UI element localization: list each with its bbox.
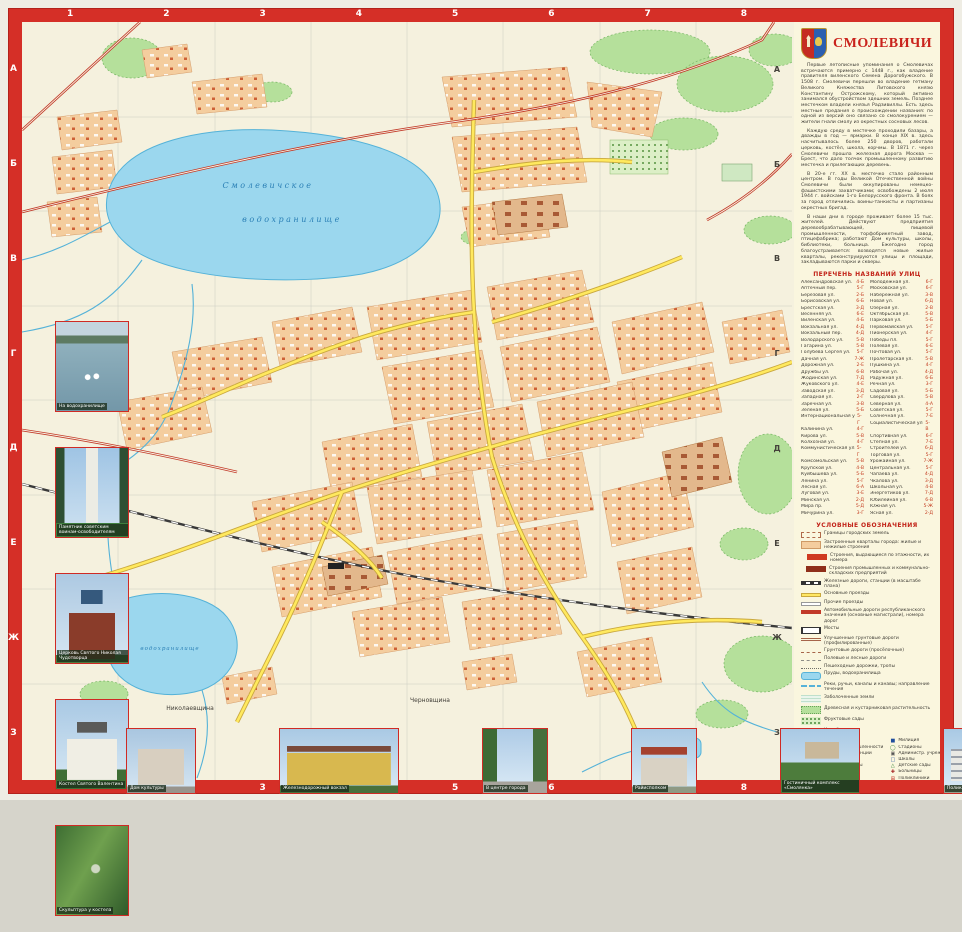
photo-caption: Дом культуры bbox=[128, 785, 166, 792]
legend-row: Застроенные кварталы города: жилые и неж… bbox=[801, 540, 933, 550]
legend-swatch bbox=[801, 660, 821, 661]
photo-caption: Памятник советским воинам-освободителям bbox=[57, 524, 128, 536]
city-title: СМОЛЕВИЧИ bbox=[833, 36, 932, 52]
legend-label: Автомобильные дороги республиканского зн… bbox=[824, 608, 933, 624]
landmark-photo: Железнодорожный вокзал bbox=[279, 728, 399, 794]
legend-label: Полевые и лесные дороги bbox=[824, 656, 933, 661]
info-sidebar: СМОЛЕВИЧИ Первые летописные упоминания о… bbox=[794, 22, 940, 780]
photo-caption: Церковь Святого Николая Чудотворца bbox=[57, 650, 128, 662]
legend-row: Полевые и лесные дороги bbox=[801, 656, 933, 661]
history-text: Первые летописные упоминания о Смолевича… bbox=[801, 63, 933, 266]
legend-swatch bbox=[801, 541, 821, 549]
street-name: Мичурина ул. bbox=[801, 511, 834, 517]
grid-letter: А bbox=[7, 22, 20, 117]
grid-number: 7 bbox=[600, 7, 696, 21]
grid-letter: Г bbox=[770, 306, 784, 401]
grid-letter: Б bbox=[7, 117, 20, 212]
city-map-canvas: Смолевичское водохранилище водохранилище… bbox=[22, 22, 792, 780]
legend-swatch bbox=[801, 685, 821, 687]
grid-number: 3 bbox=[215, 7, 311, 21]
legend-label: Строения, выдающиеся по этажности, их но… bbox=[830, 553, 933, 563]
legend-label: Пруды, водохранилища bbox=[824, 671, 933, 676]
street-grid-ref: 5-Г bbox=[857, 414, 864, 427]
landmark-photo: Гостиничный комплекс «Смолянка» bbox=[780, 728, 860, 794]
legend-swatch bbox=[801, 638, 821, 641]
street-grid-ref: 3-Г bbox=[857, 511, 864, 517]
legend-row: Мосты bbox=[801, 626, 933, 633]
history-paragraph: Каждую среду в местечке проходили базары… bbox=[801, 129, 933, 169]
street-name: Интернациональная ул. bbox=[801, 414, 855, 427]
photo-strip-left: На водохранилище Памятник советским воин… bbox=[15, 305, 91, 932]
legend-label: Заболоченные земли bbox=[824, 695, 933, 700]
landmark-photo: Скульптура у костела bbox=[55, 825, 129, 916]
legend-swatch bbox=[801, 628, 821, 633]
history-paragraph: Первые летописные упоминания о Смолевича… bbox=[801, 63, 933, 126]
legend-label: Застроенные кварталы города: жилые и неж… bbox=[824, 540, 933, 550]
history-paragraph: В 20-е гг. XX в. местечко стало районным… bbox=[801, 172, 933, 212]
legend-label: Железные дороги, станции (в масштабе пла… bbox=[824, 579, 933, 589]
sidebar-header: СМОЛЕВИЧИ bbox=[801, 28, 933, 59]
street-name: Социалистическая ул. bbox=[870, 421, 923, 434]
legend-label: Реки, ручьи, каналы и канавы; направлени… bbox=[824, 682, 933, 692]
legend-swatch bbox=[801, 602, 821, 606]
legend-swatch bbox=[801, 668, 821, 669]
railway-station-symbol bbox=[328, 563, 344, 569]
legend-swatch bbox=[801, 652, 821, 653]
legend-row: Заболоченные земли bbox=[801, 695, 933, 704]
grid-letter: Б bbox=[770, 117, 784, 212]
legend-swatch bbox=[801, 581, 821, 585]
legend-label: Древесная и кустарниковая растительность bbox=[824, 706, 933, 711]
legend-heading: УСЛОВНЫЕ ОБОЗНАЧЕНИЯ bbox=[801, 522, 933, 529]
legend-swatch bbox=[807, 554, 827, 560]
legend-row: Улучшенные грунтовые дороги (профилирова… bbox=[801, 636, 933, 646]
street-grid-ref: 5-В bbox=[925, 421, 933, 434]
legend-label: Строения промышленных и коммунально-скла… bbox=[829, 566, 933, 576]
grid-number: 6 bbox=[503, 7, 599, 21]
cemetery-area bbox=[722, 164, 752, 181]
grid-number: 5 bbox=[407, 7, 503, 21]
grid-number: 1 bbox=[22, 7, 118, 21]
legend-swatch bbox=[801, 672, 821, 680]
street-entry: Ясная ул. 2-Д bbox=[870, 511, 933, 517]
photo-caption: Костел Святого Валентина bbox=[57, 781, 125, 788]
legend-row: Железные дороги, станции (в масштабе пла… bbox=[801, 579, 933, 589]
legend-row: Грунтовые дороги (просёлочные) bbox=[801, 648, 933, 653]
legend-swatch bbox=[801, 532, 821, 538]
grid-letter: Д bbox=[770, 401, 784, 496]
landmark-photo: Поликлиника bbox=[943, 728, 962, 794]
reservoir-label-line2: водохранилище bbox=[242, 215, 342, 224]
grid-letter: Е bbox=[770, 496, 784, 591]
photo-caption: Скульптура у костела bbox=[57, 907, 113, 914]
grid-letter: В bbox=[770, 212, 784, 307]
village-label-west: Николаевщина bbox=[166, 705, 214, 712]
legend-label: Прочие проезды bbox=[824, 600, 933, 605]
legend-row: Пешеходные дорожки, тропы bbox=[801, 664, 933, 669]
photo-caption: Райисполком bbox=[633, 785, 668, 792]
grid-number: 4 bbox=[311, 7, 407, 21]
street-grid-ref: 2-Д bbox=[925, 511, 933, 517]
history-paragraph: В наши дни в городе проживает более 15 т… bbox=[801, 215, 933, 266]
street-index: Александровская ул. 4-Б Аптечный пер. 5-… bbox=[801, 280, 933, 517]
legend-swatch bbox=[806, 566, 826, 572]
legend-label: Грунтовые дороги (просёлочные) bbox=[824, 648, 933, 653]
legend-list: Границы городских земель Застроенные ква… bbox=[801, 531, 933, 736]
landmark-photo: На водохранилище bbox=[55, 321, 129, 412]
legend-row: Пруды, водохранилища bbox=[801, 671, 933, 680]
grid-number: 8 bbox=[696, 7, 792, 21]
legend-row: Прочие проезды bbox=[801, 600, 933, 606]
street-entry: Мичурина ул. 3-Г bbox=[801, 511, 864, 517]
legend-row: Автомобильные дороги республиканского зн… bbox=[801, 608, 933, 624]
landmark-photo: В центре города bbox=[482, 728, 548, 794]
photo-strip-bottom: Дом культуры Железнодорожный вокзал В це… bbox=[86, 712, 962, 780]
grid-letter: Ж bbox=[770, 591, 784, 686]
village-label-east: Черновщина bbox=[410, 697, 450, 704]
street-entry: Интернациональная ул. 5-Г bbox=[801, 414, 864, 427]
legend-swatch bbox=[801, 593, 821, 597]
scanned-map-sheet: Смолевичское водохранилище водохранилище… bbox=[0, 0, 962, 800]
legend-label: Улучшенные грунтовые дороги (профилирова… bbox=[824, 636, 933, 646]
reservoir-label-line1: Смолевичское bbox=[223, 181, 314, 190]
street-entry: Коммунистическая ул. 5-Г bbox=[801, 446, 864, 459]
legend-swatch bbox=[801, 695, 821, 703]
legend-label: Основные проезды bbox=[824, 591, 933, 596]
legend-swatch bbox=[801, 610, 821, 614]
reservoir-south-label: водохранилище bbox=[140, 646, 199, 652]
street-entry: Социалистическая ул. 5-В bbox=[870, 421, 933, 434]
photo-caption: Железнодорожный вокзал bbox=[281, 785, 349, 792]
photo-caption: На водохранилище bbox=[57, 403, 107, 410]
orchard-area bbox=[610, 140, 668, 174]
grid-letter: А bbox=[770, 22, 784, 117]
legend-row: Строения, выдающиеся по этажности, их но… bbox=[801, 553, 933, 563]
street-name: Коммунистическая ул. bbox=[801, 446, 855, 459]
coat-of-arms-icon bbox=[801, 28, 827, 59]
streets-heading: ПЕРЕЧЕНЬ НАЗВАНИЙ УЛИЦ bbox=[801, 271, 933, 278]
legend-row: Основные проезды bbox=[801, 591, 933, 597]
grid-letter: В bbox=[7, 212, 20, 307]
street-grid-ref: 5-Г bbox=[857, 446, 864, 459]
landmark-photo: Дом культуры bbox=[126, 728, 196, 794]
legend-label: Границы городских земель bbox=[824, 531, 933, 536]
landmark-photo: Райисполком bbox=[631, 728, 697, 794]
legend-row: Строения промышленных и коммунально-скла… bbox=[801, 566, 933, 576]
legend-row: Реки, ручьи, каналы и канавы; направлени… bbox=[801, 682, 933, 692]
grid-number: 2 bbox=[118, 7, 214, 21]
photo-caption: Гостиничный комплекс «Смолянка» bbox=[782, 780, 859, 792]
legend-label: Пешеходные дорожки, тропы bbox=[824, 664, 933, 669]
grid-number: 8 bbox=[696, 781, 792, 795]
legend-row: Границы городских земель bbox=[801, 531, 933, 538]
grid-numbers-top: 12345678 bbox=[22, 7, 792, 21]
legend-label: Мосты bbox=[824, 626, 933, 631]
photo-caption: Поликлиника bbox=[945, 785, 962, 792]
photo-caption: В центре города bbox=[484, 785, 528, 792]
landmark-photo: Церковь Святого Николая Чудотворца bbox=[55, 573, 129, 664]
landmark-photo: Памятник советским воинам-освободителям bbox=[55, 447, 129, 538]
street-name: Ясная ул. bbox=[870, 511, 893, 517]
grid-letters-right: АБВГДЕЖЗ bbox=[770, 22, 784, 780]
map-svg: Смолевичское водохранилище водохранилище… bbox=[22, 22, 792, 780]
